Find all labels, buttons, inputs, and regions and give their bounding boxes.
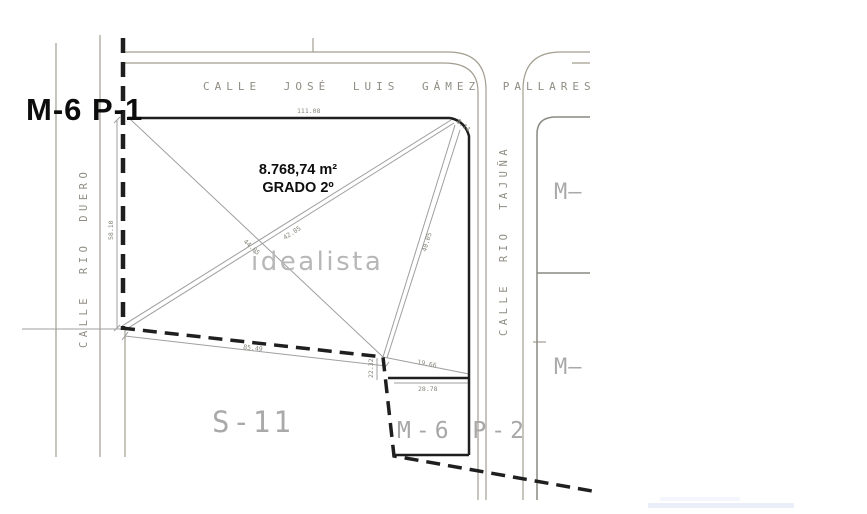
diagonal-bl-tr-b [125,123,454,330]
right-plot-label-bottom: M— [554,355,583,380]
dim-diagonal-b: 42.05 [282,224,303,241]
dim-diagonal-c: 40.05 [420,231,433,252]
diagonal-tr-junction-a [383,125,455,357]
plot-label-m6p2: M-6 P-2 [397,418,529,444]
dim-junction-height: 22.32 [367,358,375,378]
plot-area-value: 8.768,74 m² [213,161,383,179]
dim-subplot-diagonal: 19.66 [417,358,438,370]
dim-subplot-top: 28.78 [418,385,438,393]
plot-label-m6p1: M-6 P-1 [26,92,143,128]
street-name-top: CALLE JOSÉ LUIS GÁMEZ PALLARES [203,80,596,93]
dim-south-edge: 85.49 [243,343,263,353]
dim-corner-chamfer: 8.14 [455,117,472,133]
plot-grade-value: GRADO 2º [213,179,383,197]
street-name-right: CALLE RIO TAJUÑA [498,145,510,336]
plot-area-block: 8.768,74 m² GRADO 2º [213,161,383,197]
right-plot-label-top: M— [554,180,583,205]
street-name-left: CALLE RIO DUERO [78,168,90,348]
scan-artifact-smudge [648,503,794,508]
right-parcel-boundary [537,117,590,500]
parcel-south-dashed-boundary [121,328,592,491]
sector-label-s11: S-11 [212,405,294,439]
scan-artifact-smudge-light [660,497,740,501]
right-parcels-linework [537,117,590,500]
dim-west-edge: 58.10 [107,220,115,240]
parcel-east-edge [450,118,469,455]
idealista-watermark: idealista [251,247,383,277]
dim-top-edge: 111.08 [297,107,321,115]
diagonal-bl-tr-a [122,120,451,326]
diagonal-tl-junction [130,119,383,357]
street-right-corner-curb [523,52,590,500]
cadastral-plan: 111.08 58.10 85.49 44.05 42.05 40.05 8.1… [0,0,867,514]
